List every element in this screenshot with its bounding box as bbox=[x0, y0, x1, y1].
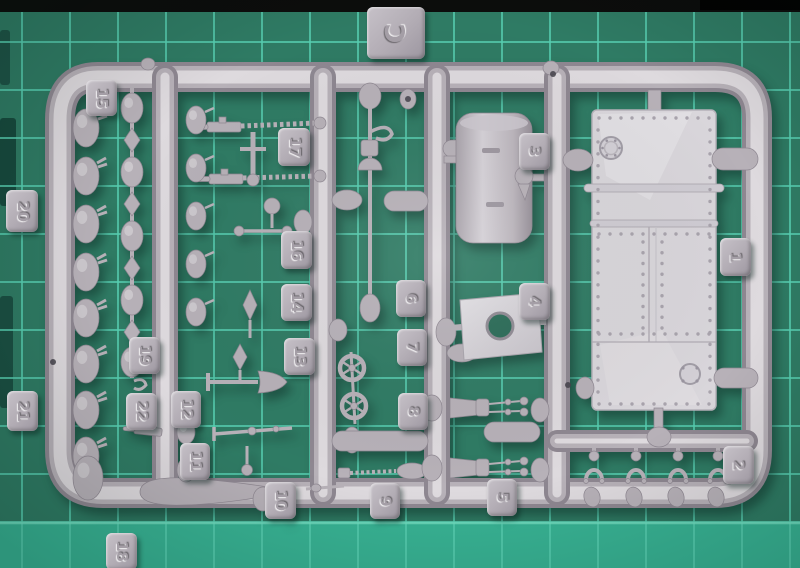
sprue-gate-tag-9: 9 bbox=[370, 483, 400, 519]
sprue-gate-tag-10: 10 bbox=[265, 482, 296, 519]
chain-egg-part bbox=[121, 93, 143, 123]
torpedo-tank-part bbox=[712, 148, 758, 170]
photo-cutting-mat-scene: C 15 20 21 18 17 16 19 22 12 11 14 13 10… bbox=[0, 0, 800, 568]
sprue-gate-tag-7: 7 bbox=[397, 329, 427, 366]
sprue-gate-tag-19: 19 bbox=[129, 337, 160, 374]
sprue-gate-tag-5: 5 bbox=[487, 479, 517, 516]
torpedo-tank-part bbox=[714, 368, 758, 388]
sprue-gate-tag-8: 8 bbox=[398, 393, 428, 430]
sprue-gate-tag-20: 20 bbox=[6, 190, 38, 232]
sprue-gate-tag-22: 22 bbox=[126, 393, 157, 430]
sprue-gate-tag-12: 12 bbox=[171, 391, 201, 428]
egg-part bbox=[436, 318, 456, 346]
sprue-gate-tag-2: 2 bbox=[723, 446, 754, 484]
torpedo-tank-part bbox=[332, 431, 428, 451]
chain-egg-part bbox=[121, 285, 143, 315]
sprue-gate-tag-14: 14 bbox=[281, 284, 312, 321]
sprue-gate-tag-18: 18 bbox=[106, 533, 137, 568]
mat-dark-mark bbox=[0, 30, 10, 85]
egg-part bbox=[576, 377, 594, 399]
sprue-gate-tag-4: 4 bbox=[519, 283, 550, 320]
bomb-part bbox=[73, 456, 103, 500]
sprue-gate-tag-6: 6 bbox=[396, 280, 426, 317]
sprue-gate-tag-3: 3 bbox=[519, 133, 550, 170]
sprue-gate-tag-21: 21 bbox=[7, 391, 38, 431]
chain-egg-part bbox=[121, 157, 143, 187]
sprue-gate-tag-17: 17 bbox=[278, 128, 310, 166]
riveted-panel-part bbox=[584, 90, 724, 447]
sprue-gate-tag-C: C bbox=[367, 7, 425, 59]
sprue-gate-tag-15: 15 bbox=[86, 80, 117, 116]
torpedo-tank-part bbox=[563, 149, 593, 171]
sprue-gate-tag-11: 11 bbox=[180, 443, 210, 480]
sprue-gate-tag-13: 13 bbox=[284, 338, 315, 375]
torpedo-tank-part bbox=[484, 422, 540, 442]
sprue-gate-tag-1: 1 bbox=[720, 238, 751, 276]
egg-part bbox=[329, 319, 347, 341]
sprue-gate-tag-16: 16 bbox=[281, 231, 312, 269]
torpedo-tank-part bbox=[384, 191, 428, 211]
chain-egg-part bbox=[121, 221, 143, 251]
torpedo-tank-part bbox=[332, 190, 362, 210]
sprue-nub bbox=[141, 58, 155, 70]
